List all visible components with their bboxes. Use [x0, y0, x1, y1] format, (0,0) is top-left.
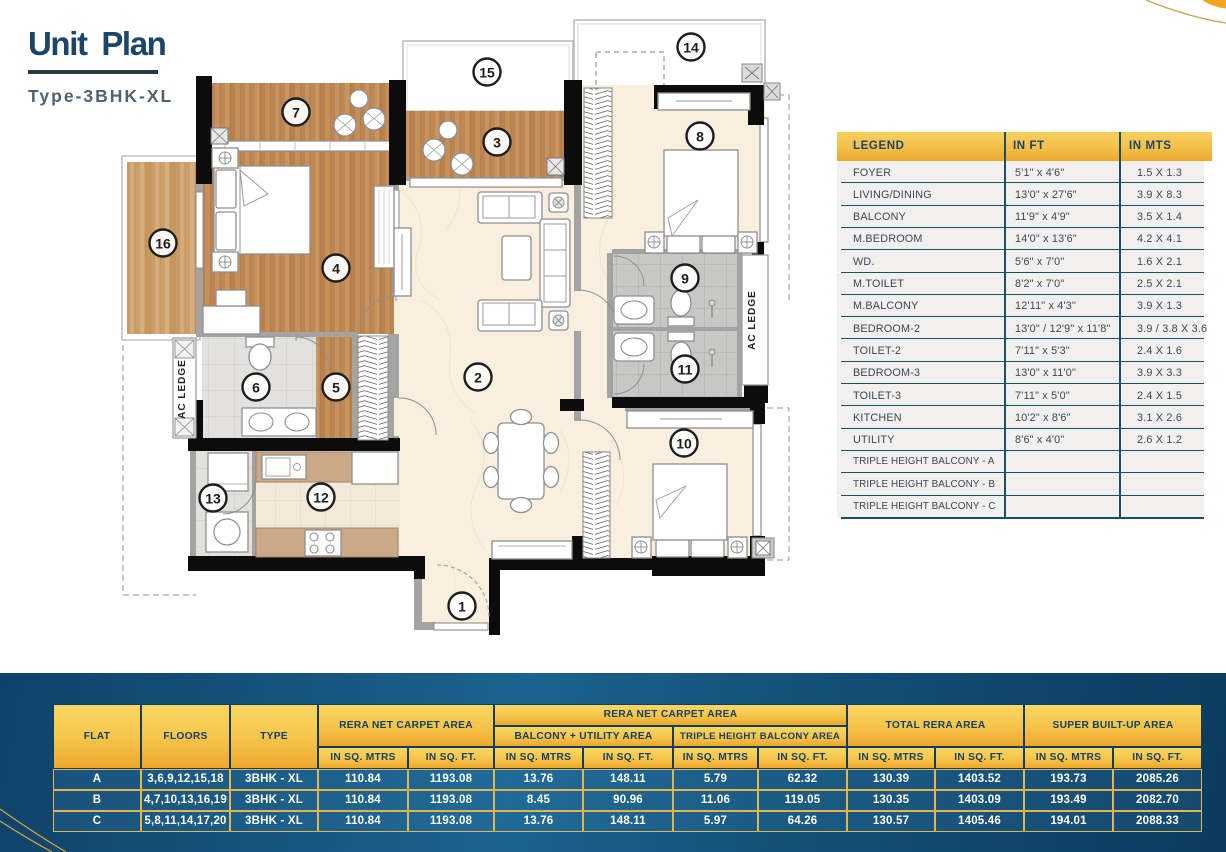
svg-text:4: 4	[332, 261, 340, 277]
svg-text:6: 6	[252, 380, 260, 396]
svg-text:8: 8	[696, 129, 704, 145]
svg-text:13: 13	[205, 491, 221, 507]
svg-text:7: 7	[292, 105, 300, 121]
svg-text:AC LEDGE: AC LEDGE	[747, 290, 758, 350]
svg-text:10: 10	[676, 436, 692, 452]
svg-text:5: 5	[332, 380, 340, 396]
svg-text:2: 2	[474, 370, 482, 386]
svg-text:3: 3	[493, 135, 501, 151]
svg-text:1: 1	[458, 599, 466, 615]
svg-text:16: 16	[155, 236, 171, 252]
svg-text:11: 11	[678, 362, 693, 378]
svg-text:AC LEDGE: AC LEDGE	[177, 359, 188, 419]
svg-text:15: 15	[479, 65, 495, 81]
svg-text:14: 14	[683, 40, 699, 56]
svg-text:9: 9	[681, 271, 689, 287]
svg-text:12: 12	[313, 490, 329, 506]
